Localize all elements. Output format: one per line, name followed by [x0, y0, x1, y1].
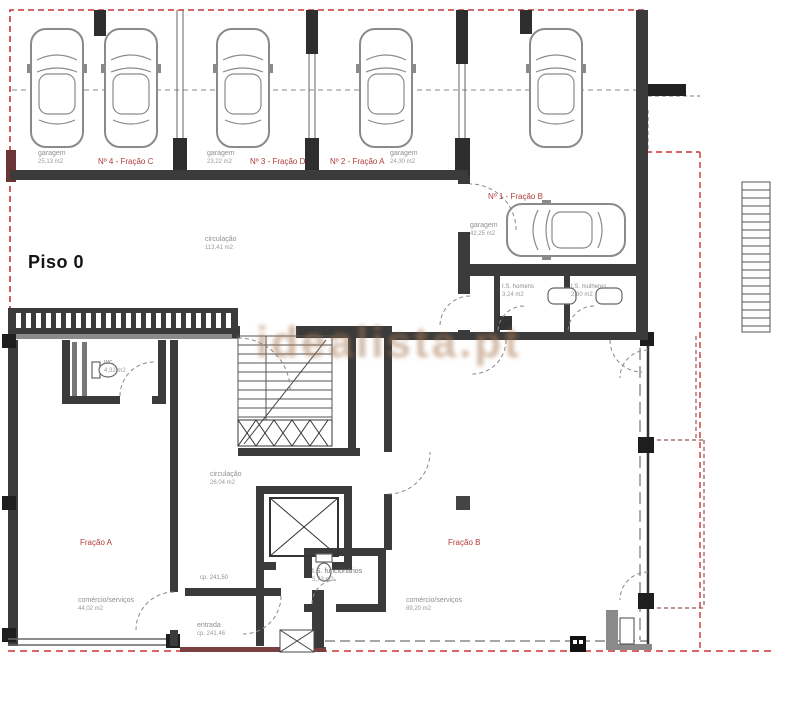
parked-cars [27, 29, 625, 260]
room-name: I.S. mulheres [571, 284, 606, 290]
label-comercio-b: comércio/serviços 89,20 m2 [406, 597, 462, 613]
label-entrada: entrada cp. 241,46 [197, 622, 225, 638]
room-area: 2,60 m2 [571, 292, 606, 300]
label-is-homens: I.S. homens 3,24 m2 [502, 284, 534, 299]
room-name: garagem [470, 222, 498, 229]
room-area: 3,24 m2 [502, 292, 534, 300]
ramp-grate [8, 308, 238, 339]
stairs [238, 336, 332, 446]
label-fracao-d: Nº 3 - Fração D [250, 157, 305, 166]
label-fracao-c: Nº 4 - Fração C [98, 157, 153, 166]
room-name: comércio/serviços [78, 597, 134, 604]
label-circulacao-piso: circulação 26,04 m2 [210, 471, 242, 487]
room-name: I.S. homens [502, 284, 534, 290]
label-garagem-b: garagem 42,25 m2 [470, 222, 498, 238]
room-name: circulação [205, 236, 237, 243]
entry-grille [280, 630, 314, 652]
room-name: circulação [210, 471, 242, 478]
car-icon [526, 29, 586, 147]
car-icon [101, 29, 161, 147]
room-name: garagem [207, 150, 235, 157]
label-garagem-a: garagem 24,30 m2 [390, 150, 418, 166]
room-name: I.S. funcionários [312, 568, 362, 575]
room-area: 4,32 m2 [104, 368, 126, 376]
car-icon [507, 200, 625, 260]
car-icon [356, 29, 416, 147]
room-area: 44,02 m2 [78, 606, 134, 614]
label-fracao-b: Fração B [448, 538, 480, 547]
exterior-grate [742, 182, 770, 332]
room-area: 26,04 m2 [210, 480, 242, 488]
room-area: cp. 241,46 [197, 631, 225, 639]
label-fracao-a: Fração A [80, 538, 112, 547]
label-fracao-a-garagem: Nº 2 - Fração A [330, 157, 385, 166]
label-fracao-b-garagem: Nº 1 - Fração B [488, 192, 543, 201]
room-area: 5,73 m2 [312, 577, 362, 585]
room-area: 25,13 m2 [38, 159, 66, 167]
car-icon [213, 29, 273, 147]
label-comercio-a: comércio/serviços 44,02 m2 [78, 597, 134, 613]
label-garagem-d: garagem 23,22 m2 [207, 150, 235, 166]
car-icon [27, 29, 87, 147]
label-cota-piso: cp. 241,50 [200, 575, 228, 583]
room-area: 42,25 m2 [470, 231, 498, 239]
label-is-funcionarios: I.S. funcionários 5,73 m2 [312, 568, 362, 584]
room-name: comércio/serviços [406, 597, 462, 604]
label-is-mulheres: I.S. mulheres 2,60 m2 [571, 284, 606, 299]
room-name: wc [104, 359, 113, 366]
label-garagem-c: garagem 25,13 m2 [38, 150, 66, 166]
room-name: entrada [197, 622, 221, 629]
floor-title: Piso 0 [28, 252, 84, 273]
label-wc: wc 4,32 m2 [104, 359, 126, 375]
label-circulacao-garagem: circulação 113,41 m2 [205, 236, 237, 252]
room-name: garagem [38, 150, 66, 157]
room-area: 89,20 m2 [406, 606, 462, 614]
room-area: 113,41 m2 [205, 245, 237, 253]
room-area: 23,22 m2 [207, 159, 235, 167]
room-name: garagem [390, 150, 418, 157]
room-area: 24,30 m2 [390, 159, 418, 167]
elevator [270, 498, 338, 556]
